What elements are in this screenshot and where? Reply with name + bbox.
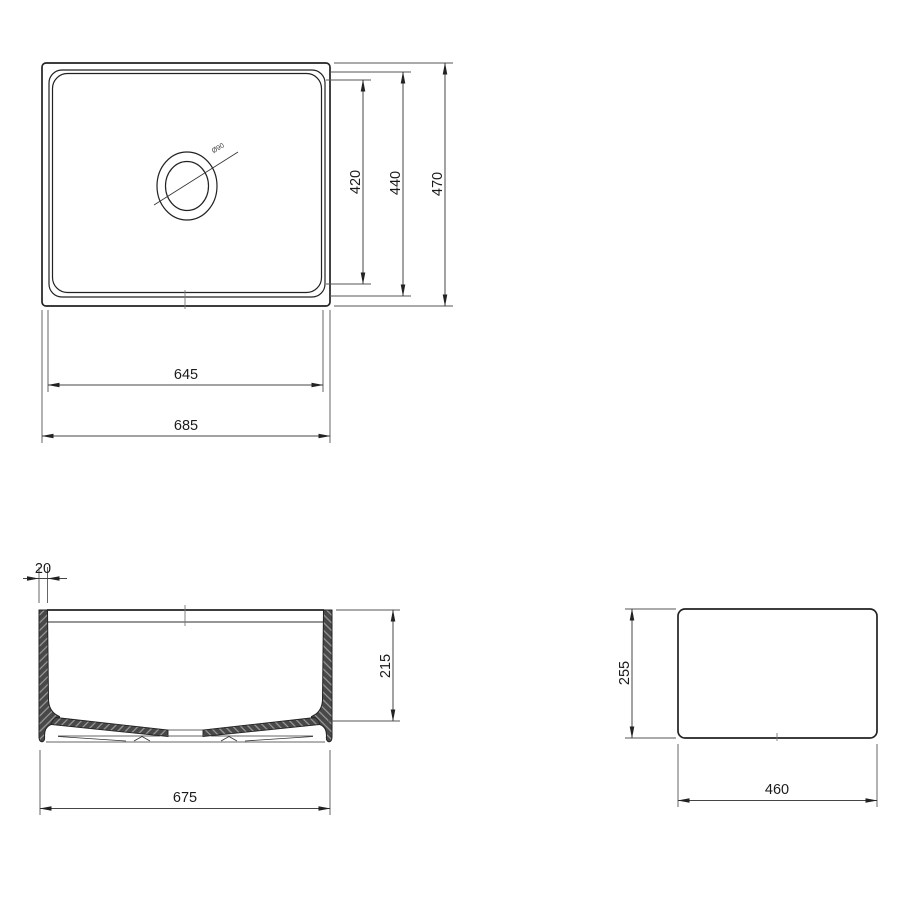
base-rib-line — [142, 737, 150, 742]
dimension-wall-thickness-20: 20 — [23, 561, 67, 603]
base-rib-line — [221, 737, 229, 742]
dimension-base-length-675: 675 — [40, 750, 330, 815]
drawing-page: Ø90 420 440 470 645 — [0, 0, 900, 900]
base-rib-line — [134, 737, 142, 742]
dimension-bowl-width-420: 420 — [326, 80, 371, 284]
dimension-label: 420 — [348, 170, 364, 194]
top-view: Ø90 420 440 470 645 — [42, 63, 453, 443]
dimension-overall-depth-460: 460 — [678, 744, 877, 807]
dimension-label: 470 — [430, 172, 446, 196]
sink-technical-drawing: Ø90 420 440 470 645 — [0, 0, 900, 900]
dimension-label: 255 — [617, 661, 633, 685]
base-rib-details — [46, 736, 325, 742]
dimension-label: 645 — [174, 367, 198, 383]
front-section-view: 20 215 675 — [23, 561, 400, 815]
dimension-label: 20 — [35, 561, 51, 577]
dimension-overall-height-255: 255 — [617, 609, 676, 738]
base-rib-line — [245, 737, 313, 742]
dimension-label: 460 — [765, 782, 789, 798]
side-view: 255 460 — [617, 609, 877, 807]
dimension-label: 685 — [174, 418, 198, 434]
section-right-floor-hatched — [203, 718, 320, 737]
dimension-label: 440 — [388, 171, 404, 195]
section-left-floor-hatched — [51, 718, 168, 737]
dimension-label: 675 — [173, 790, 197, 806]
base-rib-line — [58, 737, 126, 742]
dimension-bowl-depth-215: 215 — [328, 610, 400, 721]
base-rib-line — [229, 737, 237, 742]
side-outline — [678, 609, 877, 738]
dimension-rim-width-440: 440 — [330, 72, 411, 296]
dimension-bowl-length-645: 645 — [48, 310, 323, 392]
dimension-label: 215 — [378, 654, 394, 678]
